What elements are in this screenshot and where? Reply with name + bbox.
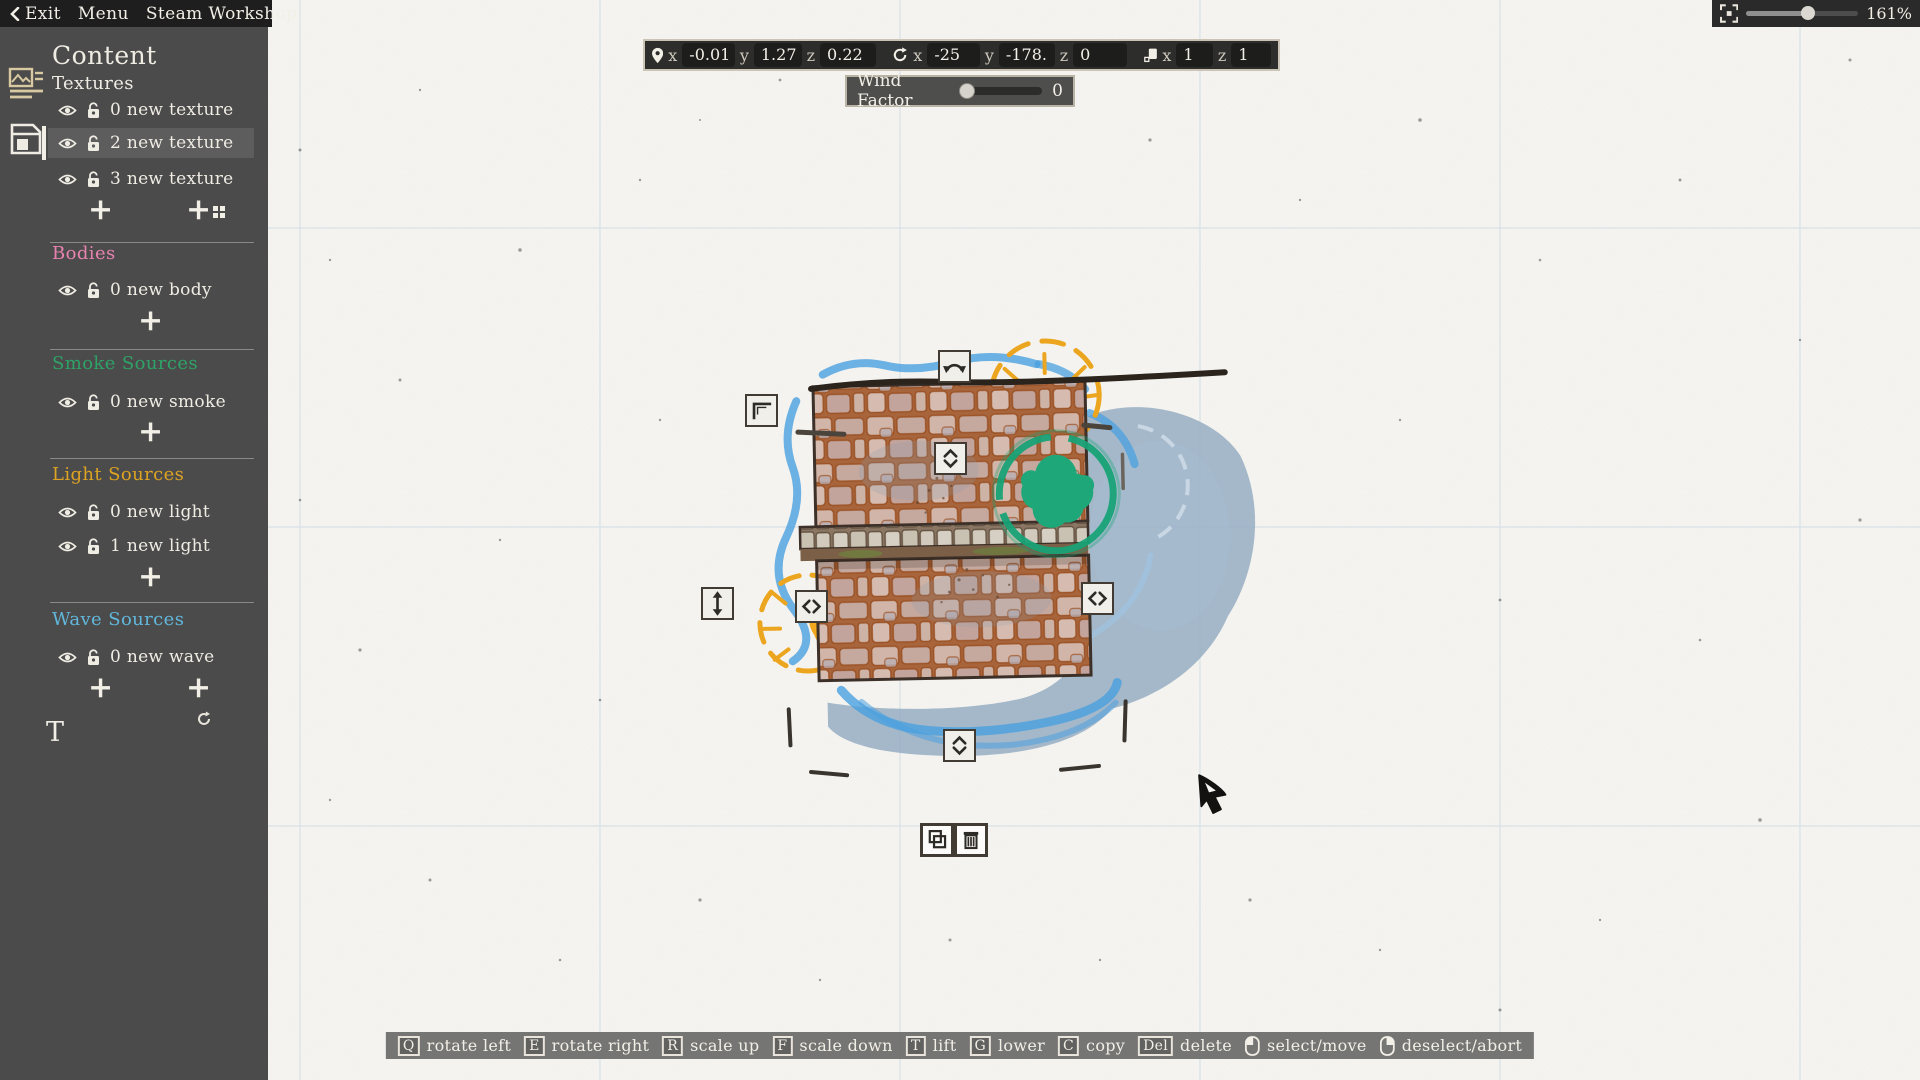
wind-factor-panel: Wind Factor 0	[845, 75, 1075, 107]
selected-indicator	[42, 126, 46, 160]
trash-icon	[957, 826, 985, 854]
list-item-label: 0 new body	[110, 280, 212, 300]
visibility-eye-icon[interactable]	[58, 396, 77, 409]
axis-label: x	[913, 46, 922, 65]
rotation-icon	[892, 45, 908, 65]
grid-dots-icon	[213, 206, 225, 218]
axis-label: z	[1060, 46, 1068, 65]
add-wave-button[interactable]: +	[88, 677, 113, 699]
scale-z-field[interactable]: 1	[1231, 43, 1271, 67]
wind-factor-slider[interactable]	[961, 87, 1043, 95]
hotkey-select-move: select/move	[1245, 1036, 1367, 1056]
exit-button[interactable]: Exit	[10, 4, 61, 24]
list-item-label: 0 new smoke	[110, 392, 226, 412]
section-light-sources: Light Sources	[52, 464, 184, 485]
position-z-field[interactable]: 0.22	[820, 43, 876, 67]
busy-cursor-icon	[196, 711, 212, 731]
text-tool-button[interactable]: T	[46, 717, 64, 748]
add-smoke-button[interactable]: +	[138, 421, 163, 443]
delete-button[interactable]	[954, 823, 988, 857]
list-item-wave-0[interactable]: 0 new wave	[48, 642, 254, 672]
axis-label: y	[985, 46, 994, 65]
unlock-icon[interactable]	[86, 135, 101, 152]
add-wave-special-button[interactable]: +	[186, 677, 211, 699]
file-panel-tab[interactable]	[6, 119, 46, 159]
duplicate-button[interactable]	[920, 823, 954, 857]
axis-label: z	[1218, 46, 1226, 65]
hotkey-copy: Ccopy	[1058, 1036, 1125, 1056]
visibility-eye-icon[interactable]	[58, 173, 77, 186]
hotkey-scale-down: Fscale down	[772, 1036, 892, 1056]
add-light-button[interactable]: +	[138, 566, 163, 588]
stretch-vertical-gizmo-center[interactable]	[934, 442, 967, 475]
unlock-icon[interactable]	[86, 394, 101, 411]
list-item-label: 1 new light	[110, 536, 210, 556]
rotation-y-field[interactable]: -178.	[999, 43, 1055, 67]
unlock-icon[interactable]	[86, 538, 101, 555]
back-icon	[10, 7, 20, 21]
add-texture-button[interactable]: +	[88, 199, 113, 221]
hotkey-deselect-abort: deselect/abort	[1380, 1036, 1522, 1056]
sidebar-title: Content	[52, 41, 157, 70]
divider	[50, 349, 254, 350]
axis-label: z	[807, 46, 815, 65]
key-badge: G	[969, 1036, 990, 1056]
list-item-label: 2 new texture	[110, 133, 234, 153]
list-item-body-0[interactable]: 0 new body	[48, 275, 254, 305]
texture-panel-icon	[8, 67, 44, 99]
divider	[50, 602, 254, 603]
wind-factor-value: 0	[1052, 81, 1063, 101]
list-item-label: 0 new texture	[110, 100, 234, 120]
visibility-eye-icon[interactable]	[58, 137, 77, 150]
key-badge: E	[524, 1036, 545, 1056]
rotation-x-field[interactable]: -25	[927, 43, 980, 67]
unlock-icon[interactable]	[86, 504, 101, 521]
unlock-icon[interactable]	[86, 102, 101, 119]
slider-fill	[1746, 11, 1808, 16]
hotkey-rotate-right: Erotate right	[524, 1036, 649, 1056]
hotkey-rotate-left: Qrotate left	[398, 1036, 511, 1056]
key-badge: C	[1058, 1036, 1079, 1056]
zoom-control-bar: 161%	[1712, 0, 1920, 27]
zoom-slider[interactable]	[1746, 11, 1858, 16]
axis-label: y	[740, 46, 749, 65]
steam-workshop-button[interactable]: Steam Workshop	[146, 4, 298, 24]
stretch-horizontal-gizmo-right[interactable]	[1081, 582, 1114, 615]
unlock-icon[interactable]	[86, 649, 101, 666]
key-badge: Del	[1138, 1036, 1173, 1056]
key-badge: Q	[398, 1036, 420, 1056]
duplicate-icon	[923, 826, 951, 854]
hotkey-bar: Qrotate left Erotate right Rscale up Fsc…	[386, 1032, 1534, 1059]
wind-factor-label: Wind Factor	[857, 71, 951, 111]
list-item-light-1[interactable]: 1 new light	[48, 531, 254, 561]
visibility-eye-icon[interactable]	[58, 104, 77, 117]
transform-bar: x -0.01 y 1.27 z 0.22 x -25 y -178. z 0 …	[643, 39, 1280, 71]
list-item-label: 0 new wave	[110, 647, 215, 667]
list-item-smoke-0[interactable]: 0 new smoke	[48, 387, 254, 417]
fit-view-icon[interactable]	[1720, 4, 1738, 23]
add-body-button[interactable]: +	[138, 310, 163, 332]
slider-thumb[interactable]	[959, 83, 975, 99]
editor-canvas[interactable]	[0, 0, 1920, 1080]
visibility-eye-icon[interactable]	[58, 284, 77, 297]
visibility-eye-icon[interactable]	[58, 651, 77, 664]
visibility-eye-icon[interactable]	[58, 540, 77, 553]
rotation-z-field[interactable]: 0	[1073, 43, 1127, 67]
zoom-level-value: 161%	[1866, 4, 1912, 23]
rotate-gizmo[interactable]	[938, 350, 971, 383]
add-texture-batch-button[interactable]: +	[186, 199, 225, 221]
exit-label: Exit	[25, 4, 61, 24]
textures-panel-tab[interactable]	[6, 63, 46, 103]
menu-button[interactable]: Menu	[78, 4, 129, 24]
top-menu-bar: Exit Menu Steam Workshop	[0, 0, 272, 27]
unlock-icon[interactable]	[86, 282, 101, 299]
mouse-right-click-icon	[1380, 1036, 1395, 1056]
content-sidebar: Content Textures 0 new texture 2 new tex…	[0, 27, 268, 1080]
list-item-texture-2[interactable]: 3 new texture	[48, 164, 254, 194]
hotkey-lift: Tlift	[906, 1036, 957, 1056]
slider-thumb[interactable]	[1801, 6, 1815, 20]
list-item-texture-1[interactable]: 2 new texture	[48, 128, 254, 158]
position-y-field[interactable]: 1.27	[754, 43, 802, 67]
axis-label: x	[668, 46, 677, 65]
resize-corner-gizmo[interactable]	[745, 394, 778, 427]
list-item-label: 3 new texture	[110, 169, 234, 189]
key-badge: R	[662, 1036, 683, 1056]
list-item-texture-0[interactable]: 0 new texture	[48, 95, 254, 125]
key-badge: F	[772, 1036, 792, 1056]
visibility-eye-icon[interactable]	[58, 506, 77, 519]
stretch-horizontal-gizmo-left[interactable]	[795, 590, 828, 623]
section-bodies: Bodies	[52, 243, 116, 264]
scale-x-field[interactable]: 1	[1176, 43, 1212, 67]
hotkey-lower: Glower	[969, 1036, 1045, 1056]
file-icon	[9, 122, 43, 156]
axis-label: x	[1162, 46, 1171, 65]
section-textures: Textures	[52, 73, 134, 94]
hotkey-delete: Deldelete	[1138, 1036, 1232, 1056]
mouse-left-click-icon	[1245, 1036, 1260, 1056]
key-badge: T	[906, 1036, 926, 1056]
unlock-icon[interactable]	[86, 171, 101, 188]
divider	[50, 458, 254, 459]
list-item-label: 0 new light	[110, 502, 210, 522]
list-item-light-0[interactable]: 0 new light	[48, 497, 254, 527]
lift-gizmo[interactable]	[701, 587, 734, 620]
section-smoke-sources: Smoke Sources	[52, 353, 198, 374]
stretch-vertical-gizmo-bottom[interactable]	[943, 729, 976, 762]
hotkey-scale-up: Rscale up	[662, 1036, 759, 1056]
position-pin-icon	[652, 46, 663, 65]
section-wave-sources: Wave Sources	[52, 609, 184, 630]
position-x-field[interactable]: -0.01	[682, 43, 735, 67]
scale-icon	[1144, 46, 1158, 64]
